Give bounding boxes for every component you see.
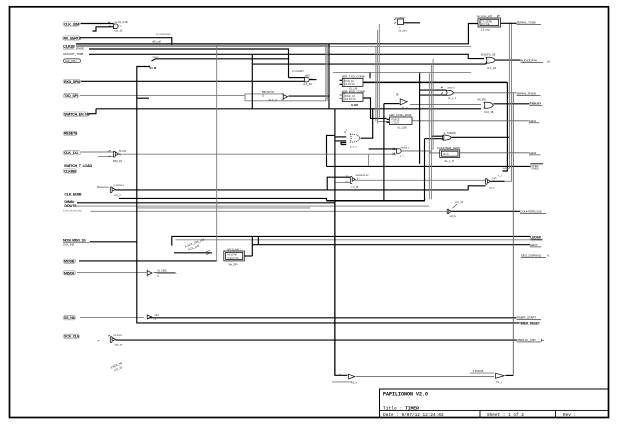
- svg-text:xx_xxx: xx_xxx: [399, 29, 408, 33]
- svg-text:xxxxxxx xx: xxxxxxx xx: [356, 173, 369, 177]
- svg-text:D0 D1 S0: D0 D1 S0: [344, 82, 355, 86]
- svg-text:xx xxxxxxxxx: xx xxxxxxxxx: [156, 33, 171, 36]
- svg-text:CLKOUT_TX08: CLKOUT_TX08: [63, 52, 83, 56]
- svg-text:xx xxxSPI: xx xxxSPI: [292, 69, 304, 73]
- svg-text:XL_x: XL_x: [496, 380, 503, 384]
- svg-text:S.SCK SS: S.SCK SS: [227, 256, 239, 260]
- svg-text:FD C: FD C: [443, 152, 449, 156]
- svg-text:B.M2_1#: B.M2_1#: [344, 79, 354, 83]
- svg-text:CLKIN8: CLKIN8: [64, 169, 76, 173]
- svg-text:xN2: xN2: [305, 73, 310, 77]
- svg-text:xxx_xx: xxx_xx: [115, 342, 124, 346]
- svg-text:x.: x.: [155, 317, 157, 321]
- svg-text:X_XOR(8): X_XOR(8): [444, 131, 456, 135]
- svg-text:= x_I8: = x_I8: [351, 185, 359, 189]
- svg-text:XL_L_8: XL_L_8: [445, 159, 455, 163]
- svg-text:XL_x: XL_x: [351, 380, 358, 384]
- svg-text:xxxx x: xxxx x: [448, 86, 456, 90]
- svg-text:xI: xI: [346, 181, 348, 184]
- svg-text:xxx_x#: xxx_x#: [455, 200, 464, 204]
- svg-text:Sheet : 1 of 2: Sheet : 1 of 2: [487, 413, 524, 418]
- svg-text:LEDS8: LEDS8: [530, 236, 540, 240]
- svg-text:RESET8: RESET8: [64, 132, 77, 136]
- svg-text:xRx_x8: xRx_x8: [152, 40, 161, 44]
- svg-text:Rev :: Rev :: [563, 413, 576, 418]
- svg-text:Date : 9/07/12 12:24:02: Date : 9/07/12 12:24:02: [383, 413, 444, 418]
- svg-text:xxx xxxx_xx#: xxx xxxx_xx#: [477, 14, 493, 18]
- svg-text:x xxxxx.x: x xxxxx.x: [114, 183, 125, 187]
- svg-text:LX_reg: LX_reg: [481, 28, 490, 32]
- svg-text:xx_x_x: xx_x_x: [448, 96, 457, 100]
- svg-text:COUNTER_LED#: COUNTER_LED#: [437, 146, 460, 150]
- svg-text:SS_N8: SS_N8: [64, 316, 75, 320]
- svg-text:LED_FLSH_DIV#: LED_FLSH_DIV#: [389, 113, 412, 117]
- svg-text:TIMER_RESET: TIMER_RESET: [519, 321, 540, 325]
- svg-text:BB INVCK: BB INVCK: [262, 90, 274, 94]
- svg-text:SER_RXD_COM8: SER_RXD_COM8: [342, 89, 366, 93]
- svg-text:xxx_x: xxx_x: [114, 193, 121, 197]
- svg-text:MOSI8: MOSI8: [64, 260, 74, 264]
- svg-text:LEDX: LEDX: [530, 243, 538, 247]
- svg-text:(,)|'x: (,)|'x: [492, 176, 497, 180]
- svg-text:xxxxx: xxxxx: [153, 56, 160, 59]
- svg-text:XL ,N(8): XL ,N(8): [157, 268, 167, 272]
- svg-text:LED2: LED2: [529, 151, 537, 155]
- svg-text:TONE8: TONE8: [530, 167, 539, 171]
- svg-text:TXD_SPI: TXD_SPI: [64, 94, 78, 98]
- svg-text:DOUT8: DOUT8: [64, 204, 76, 208]
- svg-text:XLX_28: XLX_28: [484, 110, 494, 114]
- svg-text:X .: X .: [157, 274, 160, 278]
- svg-text:SWITCH_EN_N8: SWITCH_EN_N8: [64, 113, 90, 117]
- svg-text:TXBUSY: TXBUSY: [530, 102, 543, 106]
- svg-text:IIx M: IIx M: [150, 66, 157, 70]
- svg-text:B.M2_1#: B.M2_1#: [345, 94, 355, 98]
- svg-text:MISO8: MISO8: [64, 271, 74, 275]
- svg-text:TIMER_START: TIMER_START: [517, 316, 537, 320]
- svg-text:XL_LD8: XL_LD8: [397, 125, 407, 129]
- svg-text:SEG_DISP(6:0): SEG_DISP(6:0): [521, 254, 541, 258]
- svg-text:CLK_1X.I: CLK_1X.I: [64, 151, 78, 155]
- svg-text:xx(,)x: xx(,)x: [450, 214, 457, 218]
- svg-text:SERIAL_TXD8: SERIAL_TXD8: [517, 21, 536, 25]
- svg-text:SCK_IN8: SCK_IN8: [63, 243, 75, 247]
- svg-text:XL_2: XL_2: [402, 106, 409, 110]
- svg-text:Title : TIMER: Title : TIMER: [383, 405, 419, 411]
- svg-text:x..x:.x: x..x:.x: [350, 145, 357, 149]
- svg-text:xI: xI: [346, 175, 348, 178]
- svg-text:AN_R8: AN_R8: [477, 98, 486, 102]
- svg-text:SPI SLAVE I: SPI SLAVE I: [227, 247, 241, 251]
- svg-text:IB: IB: [396, 92, 399, 96]
- svg-text:x.xx.xx.xx.xxx: x.xx.xx.xx.xxx: [63, 208, 83, 212]
- svg-text:SCK_CLK: SCK_CLK: [64, 335, 80, 339]
- svg-text:xI: xI: [339, 373, 341, 377]
- svg-text:RXD_SPI8: RXD_SPI8: [64, 80, 80, 84]
- svg-text:H: H: [547, 254, 549, 258]
- svg-text:CLK_32M: CLK_32M: [64, 22, 79, 26]
- svg-text:xLX_16: xLX_16: [303, 82, 312, 86]
- svg-text:SER_TXD_COM8: SER_TXD_COM8: [342, 74, 365, 78]
- svg-text:C CLR: C CLR: [392, 121, 400, 125]
- svg-text:CLK_EN88: CLK_EN88: [64, 192, 81, 196]
- svg-text:X#_SPI: X#_SPI: [229, 263, 238, 267]
- svg-text:SWITCH_T_LOAD: SWITCH_T_LOAD: [64, 164, 93, 168]
- svg-text:CLKOUT_RX08: CLKOUT_RX08: [63, 47, 84, 51]
- svg-text:MM_18: MM_18: [113, 159, 122, 163]
- svg-text:xx_x: xx_x: [489, 186, 495, 190]
- svg-text:B BUFG_08: B BUFG_08: [481, 53, 496, 57]
- svg-text:x ..: x ..: [346, 128, 349, 131]
- svg-text:G.N8: G.N8: [351, 103, 358, 107]
- svg-text:COUNTER(13:0): COUNTER(13:0): [520, 209, 542, 213]
- svg-text:D Q CE: D Q CE: [481, 22, 490, 26]
- svg-text:CLK_CPU: CLK_CPU: [65, 59, 77, 63]
- svg-text:AUDIODATA: AUDIODATA: [521, 59, 538, 63]
- svg-text:x_I: x_I: [498, 173, 502, 177]
- svg-text:DISPLAY_CNT: DISPLAY_CNT: [517, 338, 537, 342]
- svg-text:SERIAL_RXD8: SERIAL_RXD8: [517, 92, 537, 96]
- svg-text:xxx_10: xxx_10: [114, 29, 123, 33]
- svg-text:X BUF08: X BUF08: [473, 369, 484, 373]
- svg-text:RX_SERTX: RX_SERTX: [64, 36, 82, 40]
- svg-text:xx xxxx: xx xxxx: [114, 333, 123, 337]
- svg-text:xx xxxxx: xx xxxxx: [395, 15, 405, 19]
- svg-text:D0 D1 S0: D0 D1 S0: [345, 97, 356, 101]
- svg-text:LED1: LED1: [529, 119, 537, 123]
- svg-text:(1): (1): [547, 59, 550, 63]
- svg-text:PAPILIONON V2.0: PAPILIONON V2.0: [383, 391, 428, 397]
- svg-text:xLX_18: xLX_18: [487, 66, 496, 70]
- svg-text:-- -: -- -: [404, 144, 407, 147]
- svg-text:XLX_9: XLX_9: [269, 98, 277, 102]
- svg-text:xx xN_0 08: xx xN_0 08: [115, 20, 129, 24]
